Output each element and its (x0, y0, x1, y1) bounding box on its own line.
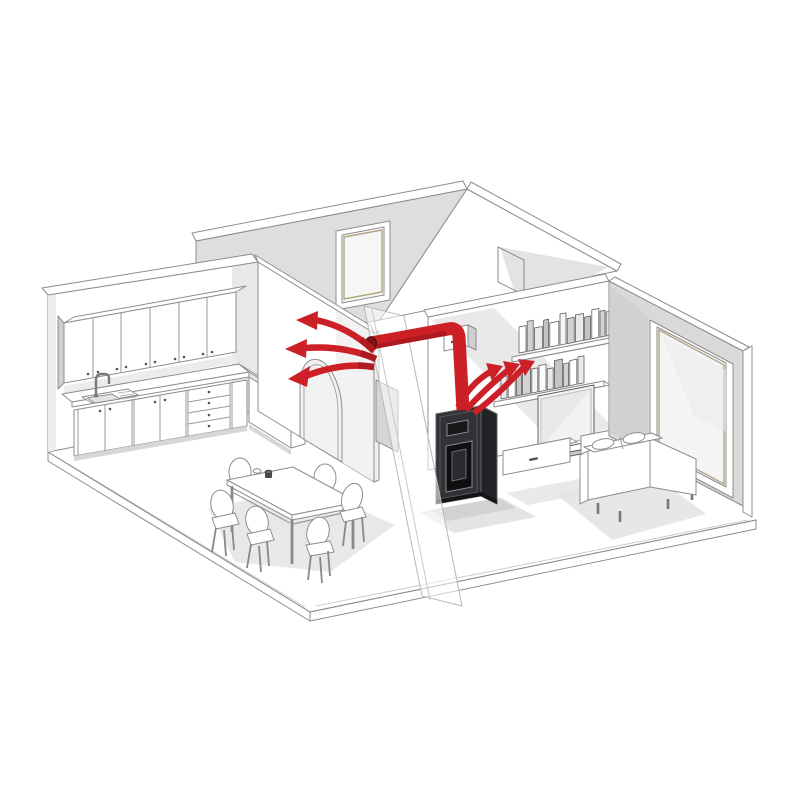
book (532, 368, 538, 393)
book (567, 317, 574, 343)
stove-door-glass (452, 449, 466, 481)
book (527, 320, 533, 351)
wall-cabinet-end-panel (58, 316, 64, 389)
book (550, 321, 559, 347)
faucet-base (93, 395, 98, 398)
kitchen-wall-edge-shading (48, 294, 56, 452)
book (519, 326, 526, 353)
book (544, 319, 549, 348)
right-wall-outer-edge (743, 346, 752, 517)
stove-side (481, 406, 497, 504)
floorplan-illustration (0, 0, 800, 800)
book (575, 313, 583, 342)
pellet-stove (436, 406, 497, 504)
book (554, 359, 562, 389)
book (534, 326, 542, 350)
book (578, 356, 584, 384)
sofa-arm-left (580, 451, 588, 504)
hallway-window (336, 221, 390, 310)
book (560, 313, 566, 345)
book (564, 363, 569, 387)
book (570, 359, 577, 385)
book (539, 364, 546, 391)
book (600, 310, 605, 337)
illustration-canvas (0, 0, 800, 800)
book (592, 308, 599, 338)
book (547, 368, 553, 390)
book (585, 316, 591, 340)
